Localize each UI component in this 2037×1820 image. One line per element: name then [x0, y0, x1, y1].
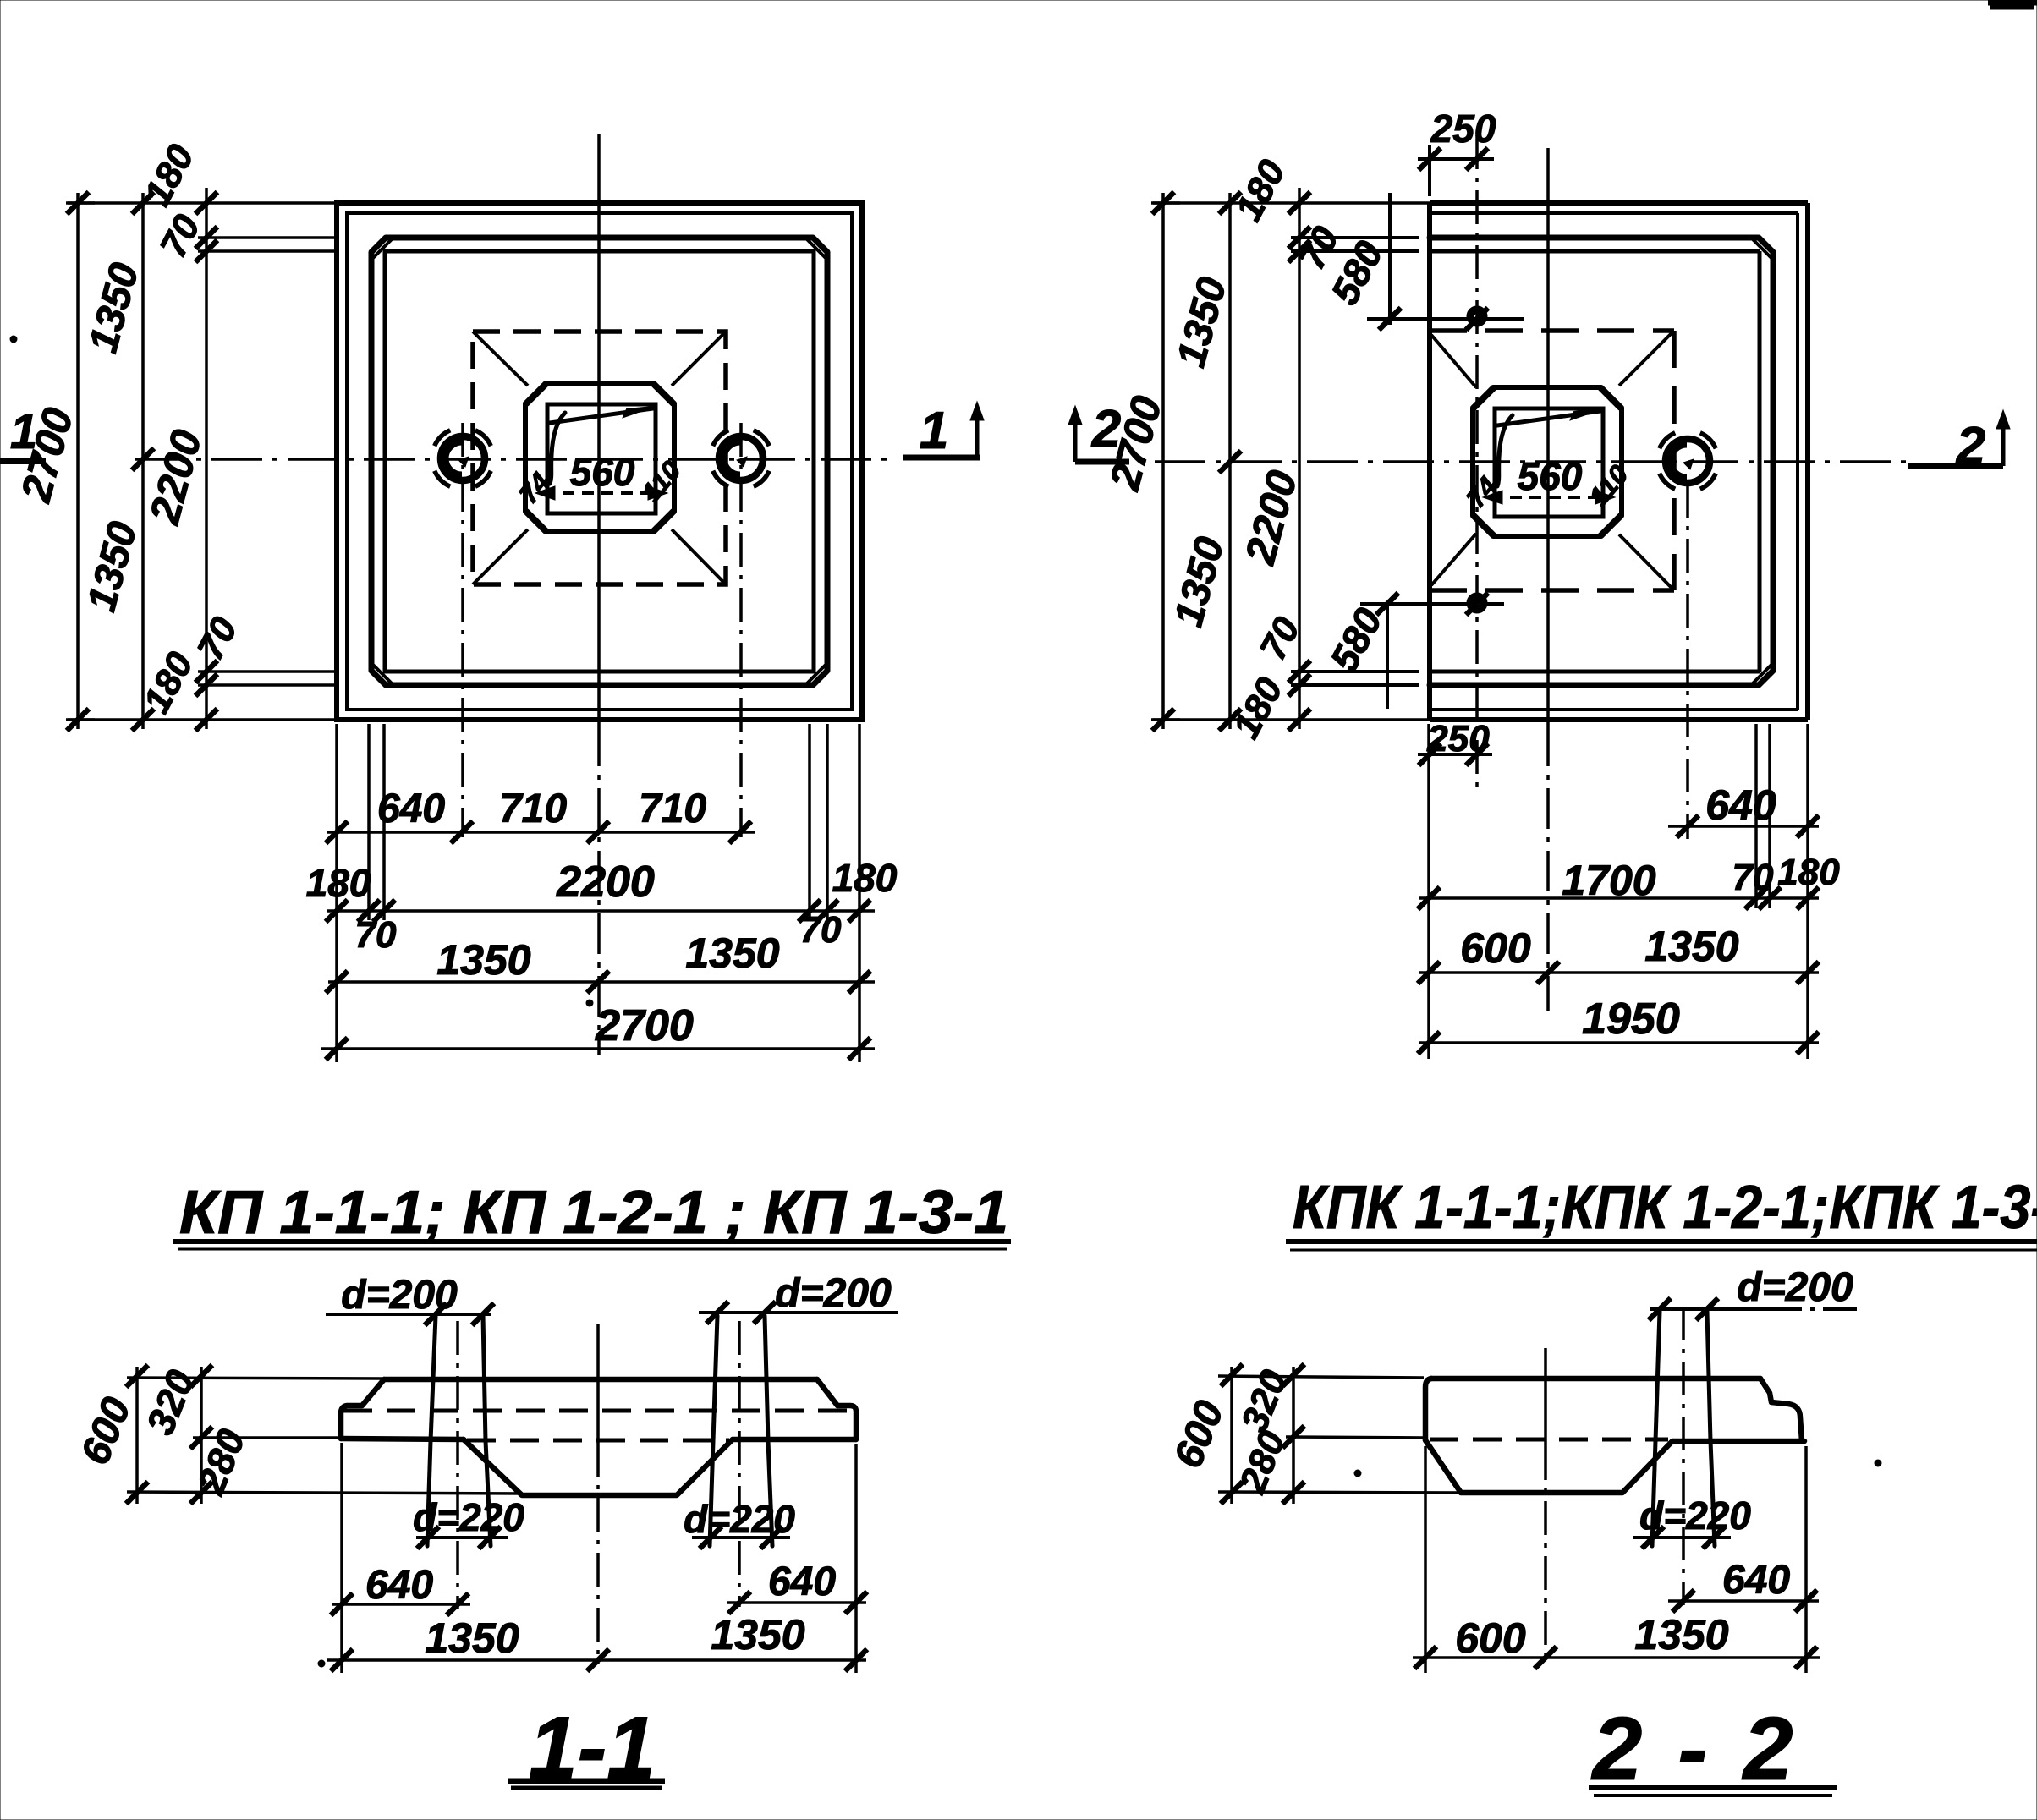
svg-text:70: 70	[1732, 857, 1774, 898]
svg-text:1950: 1950	[1582, 995, 1680, 1044]
svg-text:1350: 1350	[1634, 1611, 1728, 1658]
svg-text:180: 180	[832, 856, 898, 900]
svg-text:1350: 1350	[1644, 923, 1738, 970]
svg-text:2200: 2200	[556, 858, 655, 907]
svg-text:70: 70	[355, 914, 397, 956]
svg-text:1: 1	[920, 402, 948, 460]
svg-text:1700: 1700	[1562, 857, 1655, 904]
svg-text:710: 710	[499, 787, 567, 831]
svg-text:600: 600	[1460, 924, 1531, 972]
svg-text:70: 70	[800, 909, 842, 951]
svg-text:250: 250	[1430, 107, 1496, 151]
svg-text:640: 640	[1722, 1558, 1790, 1603]
svg-text:1350: 1350	[685, 929, 779, 977]
svg-text:1350: 1350	[711, 1611, 804, 1658]
svg-text:640: 640	[1705, 781, 1776, 829]
svg-text:710: 710	[639, 787, 706, 831]
svg-text:КПК 1-1-1;КПК 1-2-1;КПК 1-3-1: КПК 1-1-1;КПК 1-2-1;КПК 1-3-1	[1293, 1174, 2037, 1242]
svg-text:1350: 1350	[436, 936, 530, 984]
svg-text:d=200: d=200	[1737, 1265, 1853, 1310]
svg-text:560: 560	[570, 450, 635, 494]
svg-text:600: 600	[1455, 1614, 1526, 1662]
svg-text:1350: 1350	[425, 1614, 519, 1662]
svg-text:640: 640	[768, 1560, 836, 1604]
svg-text:180: 180	[306, 861, 371, 905]
svg-text:d=220: d=220	[684, 1497, 795, 1541]
svg-text:2700: 2700	[595, 1001, 694, 1050]
svg-text:d=200: d=200	[775, 1271, 892, 1316]
svg-text:640: 640	[377, 787, 445, 831]
svg-text:2-2: 2-2	[1590, 1699, 1828, 1799]
svg-text:250: 250	[1426, 718, 1490, 759]
svg-text:2: 2	[1956, 417, 1985, 475]
svg-text:180: 180	[1777, 852, 1840, 893]
svg-text:640: 640	[365, 1563, 433, 1608]
svg-text:КП 1-1-1; КП 1-2-1 ; КП 1-3-1: КП 1-1-1; КП 1-2-1 ; КП 1-3-1	[179, 1179, 1008, 1247]
